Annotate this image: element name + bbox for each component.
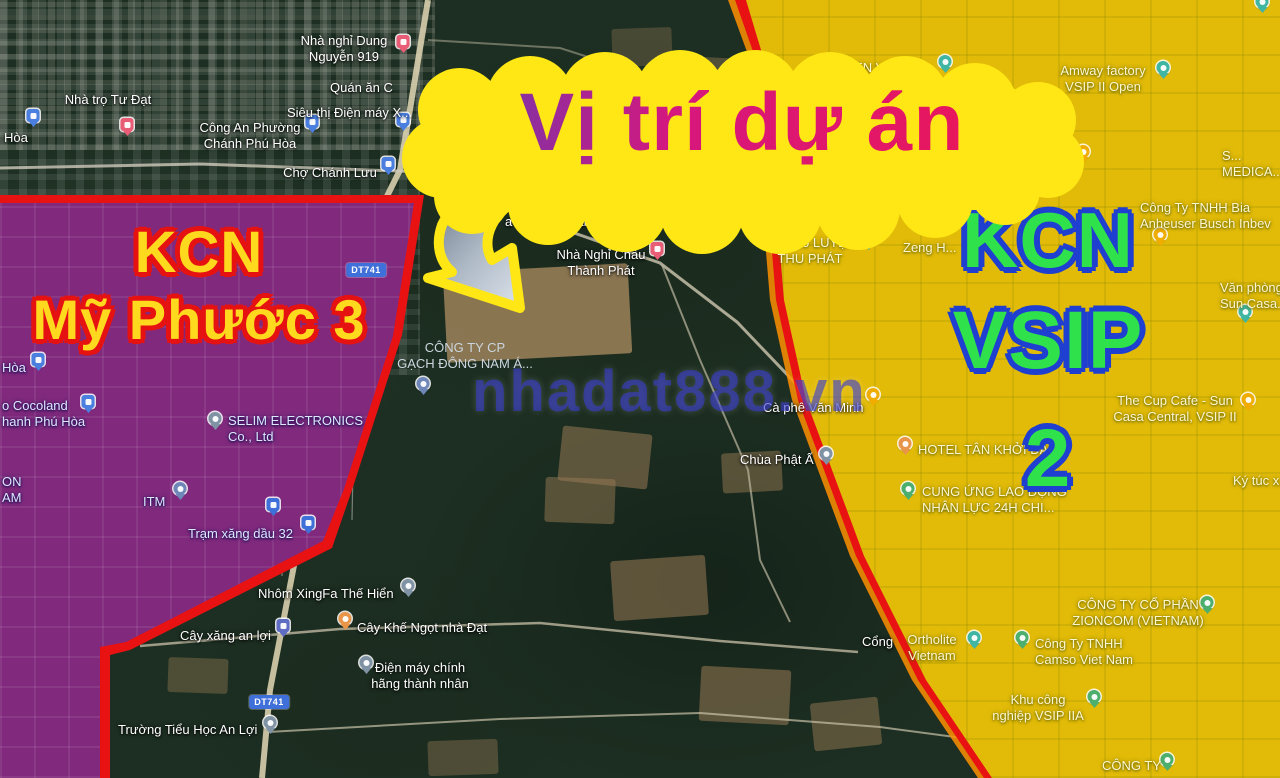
poi-label: Chùa Phật Ấ: [740, 452, 814, 468]
poi-label: Chợ Chánh Lưu: [283, 165, 377, 181]
poi-label: Nhôm XingFa Thế Hiển: [258, 586, 394, 602]
poi-label: Phê Cá Koia Phương Nam: [505, 198, 595, 230]
poi-label: Quán ăn C: [330, 80, 393, 96]
poi-label: ONAM: [2, 474, 22, 506]
poi-label: CÔNG TY: [1102, 758, 1161, 774]
poi-label: Trạm xăng dầu 32: [188, 526, 293, 542]
poi-label: URC CoffeeCreamer Factory: [976, 145, 1074, 177]
poi-label: Ký túc x...: [1233, 473, 1280, 489]
left-zone-title-line2: Mỹ Phước 3: [32, 284, 365, 356]
poi-label: Nhà trọ Tư Đạt: [65, 92, 152, 108]
poi-label: Trường Tiểu Học An Lợi: [118, 722, 257, 738]
poi-label: Hòa: [2, 360, 26, 376]
poi-label: SELIM ELECTRONICSCo., Ltd: [228, 413, 363, 445]
right-zone-title-line2: VSIP 2: [932, 282, 1164, 518]
project-location-headline: Vị trí dự án: [520, 76, 965, 170]
poi-label: Văn phòngSun Casa...: [1220, 280, 1280, 312]
poi-label: ITM: [143, 494, 165, 510]
poi-label: Điện máy chínhhãng thành nhân: [371, 660, 469, 692]
poi-label: Siêu thị Điện máy X...: [287, 105, 412, 121]
poi-label: Hòa: [4, 130, 28, 146]
right-zone-title-line1: KCN: [932, 198, 1164, 282]
poi-label: Amway factoryVSIP II Open: [1060, 63, 1145, 95]
poi-label: Cây Khế Ngọt nhà Đạt: [357, 620, 487, 636]
poi-label: Cầm đồ LUYỆNTHU PHÁT: [764, 235, 856, 267]
poi-label: Cổng: [862, 634, 893, 650]
poi-label: o Cocolandhanh Phú Hòa: [2, 398, 85, 430]
poi-label: OrtholiteVietnam: [907, 632, 956, 664]
left-zone-title: KCN Mỹ Phước 3: [32, 222, 365, 356]
watermark: nhadat888.vn: [472, 358, 867, 425]
map-poster: Nhà nghỉ DungNguyễn 919Quán ăn CSiêu thị…: [0, 0, 1280, 778]
left-zone-title-line1: KCN: [32, 222, 365, 284]
poi-label: S...MEDICA...: [1222, 148, 1280, 180]
poi-label: Công An PhườngChánh Phú Hòa: [199, 120, 300, 152]
poi-label: CÔNG TY CỔ PHẦNZIONCOM (VIETNAM): [1072, 597, 1203, 629]
poi-label: UNIBEN VSIP II-A: [823, 60, 929, 76]
poi-label: Công Ty TNHHCamso Viet Nam: [1035, 636, 1133, 668]
poi-label: Khu côngnghiệp VSIP IIA: [992, 692, 1084, 724]
right-zone-title: KCN VSIP 2: [932, 198, 1164, 518]
poi-label: Nhà nghỉ DungNguyễn 919: [301, 33, 388, 65]
poi-label: Cây xăng an lợi: [180, 628, 271, 644]
poi-label: Nhà Nghỉ ChâuThành Phát: [557, 247, 646, 279]
